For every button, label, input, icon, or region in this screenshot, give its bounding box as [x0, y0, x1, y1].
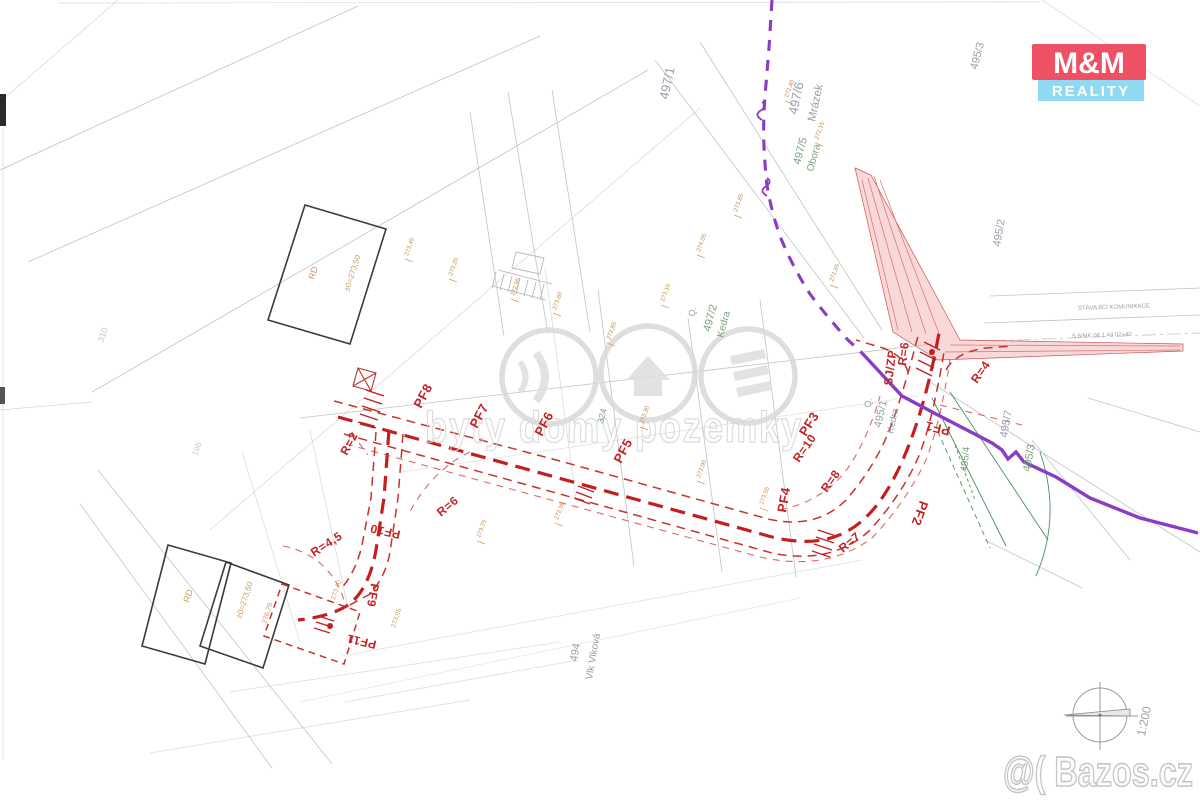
junction-point: [929, 349, 935, 355]
survey-tick: [760, 508, 768, 511]
survey-tick: [830, 285, 838, 288]
survey-point-label: 273,60: [552, 291, 564, 311]
survey-tick: [697, 255, 705, 258]
design-label: PF10: [369, 521, 402, 542]
survey-point-label: 273,85: [733, 193, 745, 213]
parcel-label: Q.: [862, 397, 874, 408]
scan-smudge: [0, 94, 6, 126]
parcel-label: Vlk Vlková: [584, 632, 603, 680]
survey-point-label: 273,10: [660, 283, 672, 303]
logo-text-top: M&M: [1053, 47, 1125, 80]
design-hatch-marks: [314, 342, 940, 633]
survey-point-label: 272,65: [829, 263, 841, 283]
building-label: ±0=273,50: [234, 580, 254, 619]
north-arrow: [1064, 682, 1138, 750]
parcel-label: 495/4: [959, 446, 973, 472]
layers-icon: [730, 349, 772, 397]
logo-text-bottom: REALITY: [1052, 83, 1130, 100]
scan-smudge: [0, 387, 5, 404]
bazos-watermark: @( Bazos.cz: [1003, 748, 1193, 795]
shaft-symbol: [353, 368, 376, 391]
parcel-label: STÁVAJÍCÍ KOMUNIKACE: [1078, 302, 1150, 312]
terminus-point: [327, 623, 333, 629]
design-label: R=4: [968, 358, 993, 386]
parcel-label: 310: [95, 326, 110, 344]
purple-dashed-line: [764, 0, 862, 353]
parcel-label: 495/3: [968, 41, 987, 71]
house-icon: [626, 356, 670, 396]
building-outline: [268, 205, 386, 344]
parcel-label: 497/1: [656, 66, 677, 101]
design-label: R=4,5: [308, 529, 345, 560]
survey-tick: [449, 279, 457, 282]
parcel-label: Q.: [686, 306, 698, 318]
design-label: PF9: [364, 582, 382, 608]
building-label: 273,05: [390, 607, 403, 628]
center-watermark: byty domy pozemky: [425, 326, 803, 452]
survey-tick: [405, 259, 413, 262]
survey-tick-layer: [405, 101, 838, 544]
squiggle-mark: [757, 102, 764, 120]
site-plan-canvas: byty domy pozemky 497/1497/6Mrázek497/5O…: [0, 0, 1200, 800]
parcel-label: 494: [568, 642, 583, 662]
building-label: RD: [181, 588, 195, 604]
design-label: R=2: [337, 430, 361, 458]
survey-point-label: 273,45: [404, 237, 416, 257]
building-label: ±0=273,50: [342, 253, 362, 292]
pink-wedge: [855, 168, 1183, 360]
scale-label: 1:200: [1134, 705, 1154, 738]
stairs-symbol: [492, 252, 552, 300]
survey-point-label: 272,15: [814, 121, 826, 141]
design-label: R=6: [434, 493, 461, 519]
building-outline: [142, 545, 231, 664]
survey-point-label: 273,55: [759, 486, 771, 506]
parcel-label: S 6/MK 08 1 44 02+40: [1072, 332, 1133, 340]
survey-tick: [553, 313, 561, 316]
survey-point-label: 272,90: [696, 459, 708, 479]
signal-icon: [520, 353, 545, 401]
design-label: PF2: [909, 499, 932, 528]
survey-tick: [661, 305, 669, 308]
building-label: 273,40: [330, 579, 343, 600]
mm-reality-logo: M&M REALITY: [1032, 44, 1146, 101]
survey-tick: [555, 523, 563, 526]
survey-point-label: 272,50: [554, 501, 566, 521]
survey-tick: [697, 481, 705, 484]
design-label: SJ/ZP: [881, 349, 899, 386]
survey-tick: [734, 215, 742, 218]
design-label: PF4: [774, 486, 793, 514]
design-label: PF11: [345, 631, 377, 651]
parcel-lines: [0, 6, 1200, 768]
survey-tick: [511, 299, 519, 302]
parcel-label: Mrázek: [806, 83, 826, 123]
design-label: R=8: [818, 467, 843, 495]
survey-point-label: 273,75: [476, 519, 488, 539]
parcel-label: Obora: [805, 143, 823, 173]
purple-solid-line: [862, 353, 1198, 533]
survey-tick: [477, 541, 485, 544]
scanned-site-plan: byty domy pozemky 497/1497/6Mrázek497/5O…: [0, 0, 1200, 800]
parcel-label: 495/2: [991, 218, 1008, 247]
parcel-label: 198: [190, 441, 203, 457]
survey-label-layer: 273,45273,20272,95273,60272,85273,10274,…: [404, 79, 841, 539]
survey-point-label: 274,05: [696, 233, 708, 253]
survey-point-label: 273,20: [448, 257, 460, 277]
